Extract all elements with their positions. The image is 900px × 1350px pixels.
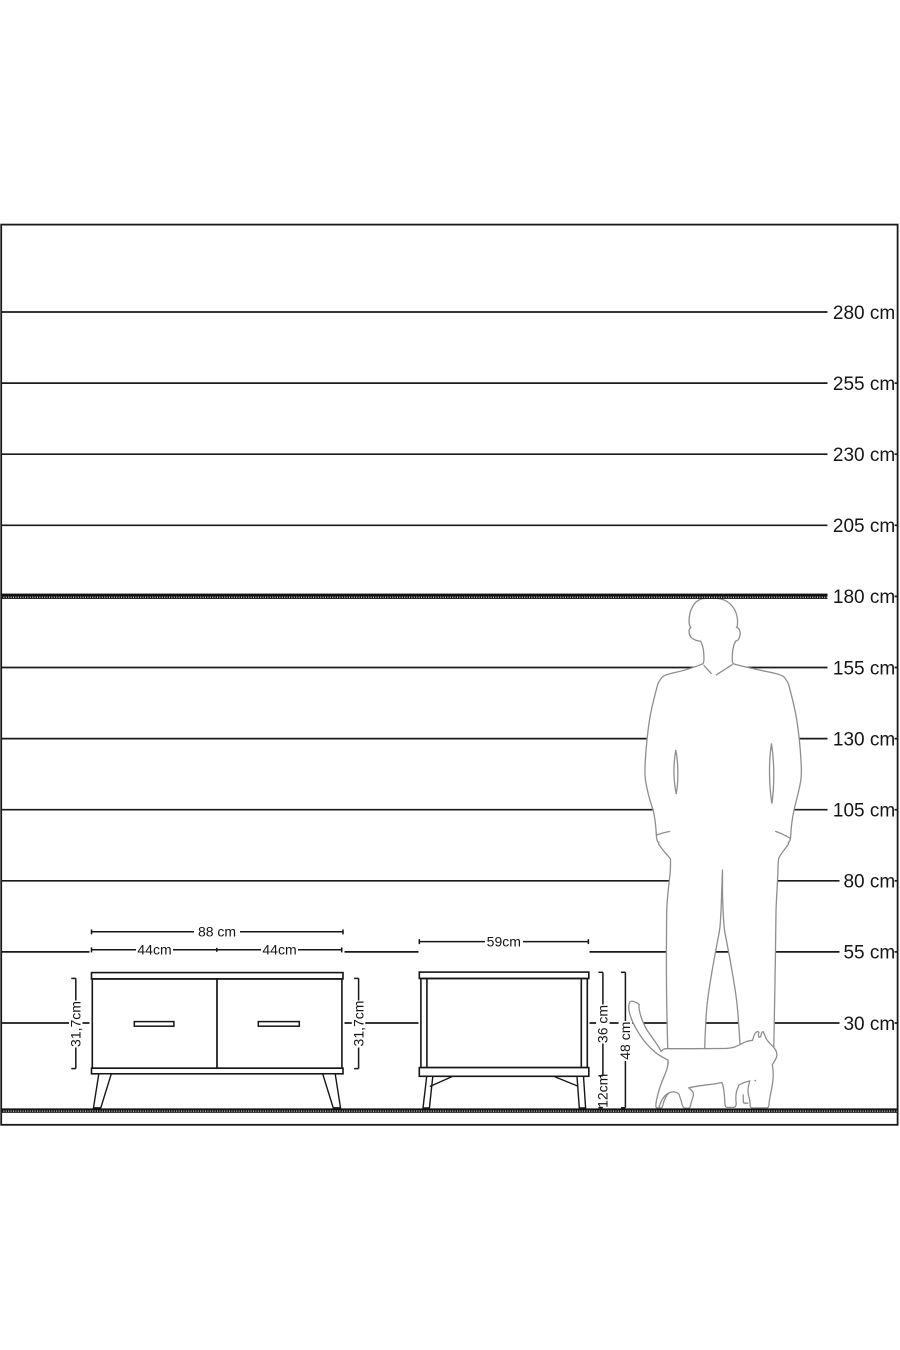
svg-text:31,7cm: 31,7cm [350,1001,366,1047]
svg-text:12cm: 12cm [595,1074,611,1108]
svg-text:230 cm: 230 cm [833,445,895,466]
svg-text:105 cm: 105 cm [833,801,895,822]
svg-text:55 cm: 55 cm [843,943,895,964]
svg-text:255 cm: 255 cm [833,374,895,395]
svg-text:205 cm: 205 cm [833,516,895,537]
svg-text:31,7cm: 31,7cm [68,1001,84,1047]
svg-text:44cm: 44cm [262,942,296,958]
svg-text:30 cm: 30 cm [843,1014,895,1035]
svg-text:44cm: 44cm [137,942,171,958]
svg-text:180 cm: 180 cm [833,587,895,608]
svg-text:280 cm: 280 cm [833,303,895,324]
svg-text:130 cm: 130 cm [833,729,895,750]
svg-text:88 cm: 88 cm [198,924,236,940]
svg-text:80 cm: 80 cm [843,872,895,893]
svg-text:36 cm: 36 cm [595,1005,611,1043]
svg-text:48 cm: 48 cm [617,1022,633,1060]
svg-text:59cm: 59cm [487,933,521,949]
svg-text:155 cm: 155 cm [833,658,895,679]
